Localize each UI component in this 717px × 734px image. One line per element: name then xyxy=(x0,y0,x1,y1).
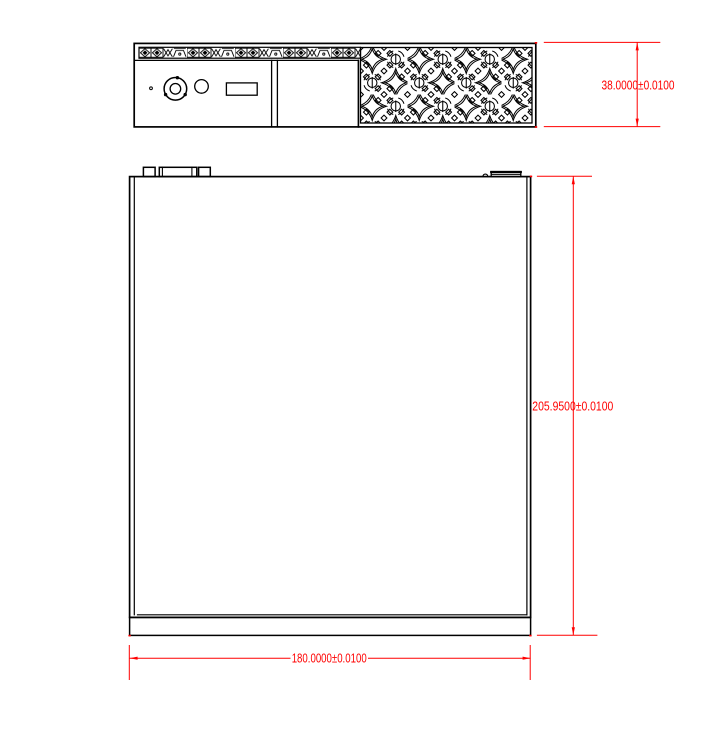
svg-text:38.0000±0.0100: 38.0000±0.0100 xyxy=(602,78,675,92)
svg-text:180.0000±0.0100: 180.0000±0.0100 xyxy=(292,651,367,665)
svg-text:205.9500±0.0100: 205.9500±0.0100 xyxy=(532,400,613,414)
